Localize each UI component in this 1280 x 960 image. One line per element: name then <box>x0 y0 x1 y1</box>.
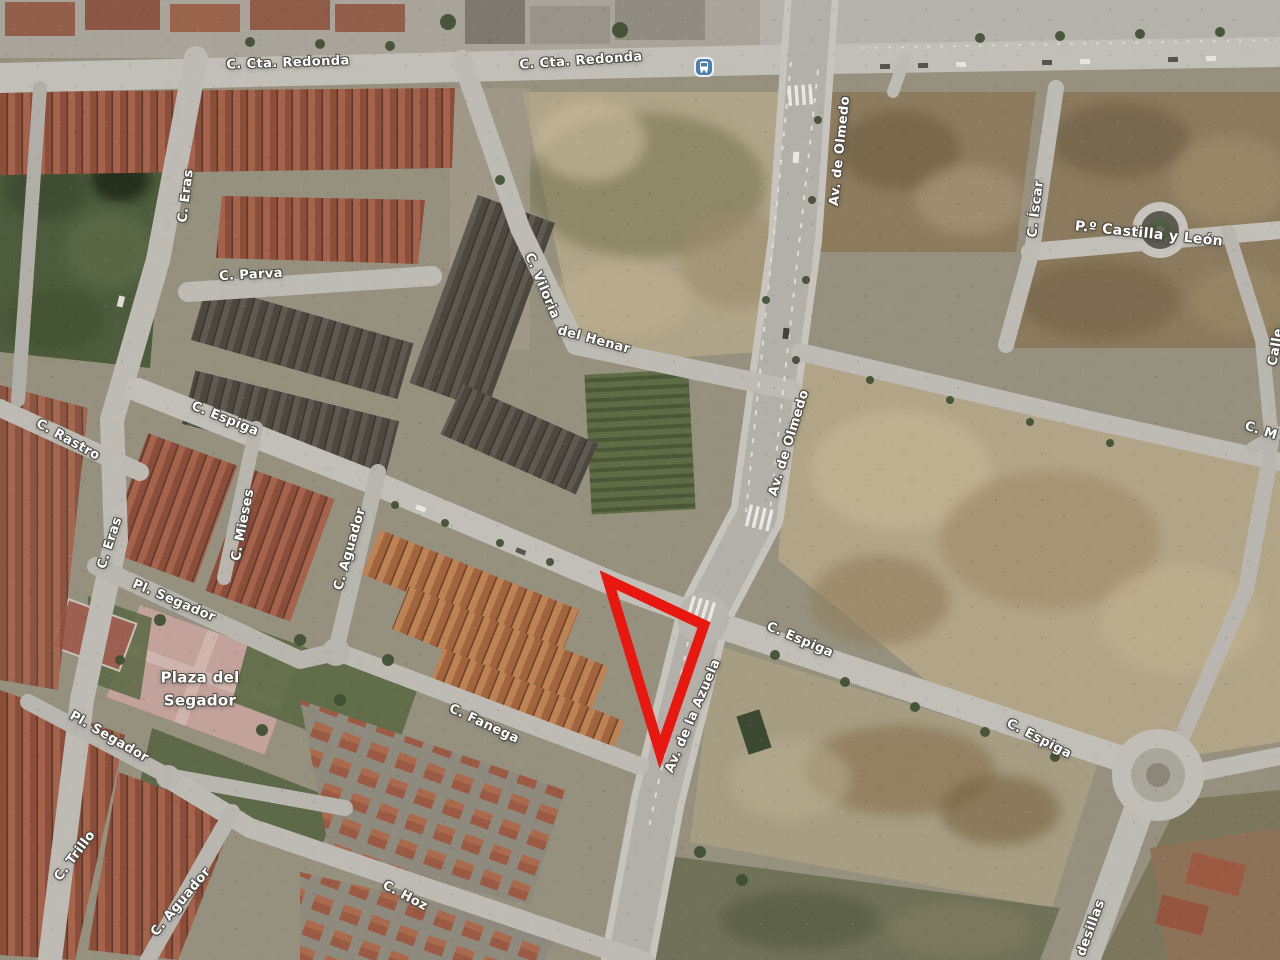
photo-grain-overlay <box>0 0 1280 960</box>
satellite-map-canvas[interactable]: C. Cta. Redonda C. Cta. Redonda C. Eras … <box>0 0 1280 960</box>
aerial-imagery <box>0 0 1280 960</box>
bus-stop-icon[interactable] <box>694 57 714 77</box>
